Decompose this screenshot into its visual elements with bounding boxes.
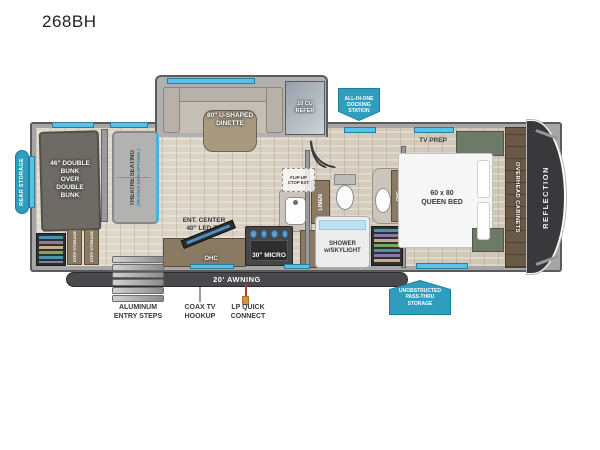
window <box>416 263 468 269</box>
faucet-icon <box>293 200 298 205</box>
vanity-sink <box>375 188 391 213</box>
theatre-seating: THEATRE SEATING (TRI-FOLD SOFA OPTIONAL) <box>112 131 159 224</box>
refrigerator: 10 CU REFER <box>285 81 325 135</box>
tv-prep-label: TV PREP <box>408 135 458 145</box>
front-cap: REFLECTION <box>527 121 564 273</box>
shower: SHOWER w/SKYLIGHT <box>315 216 370 268</box>
ent-ohc-label: OHC <box>192 254 230 264</box>
bunk-room-wall <box>101 129 108 222</box>
dinette-label: 80" U-SHAPED DINETTE <box>170 107 290 133</box>
refer-label: 10 CU REFER <box>296 101 315 114</box>
skylight-icon <box>319 220 366 230</box>
lp-label: LP QUICK CONNECT <box>219 303 277 323</box>
wardrobe-clothes-rod <box>36 233 66 266</box>
page-title: 268BH <box>42 12 96 32</box>
bunk-label: 46" DOUBLE BUNK OVER DOUBLE BUNK <box>38 145 102 215</box>
brand-label: REFLECTION <box>541 166 550 229</box>
coax-line-icon <box>199 287 201 302</box>
floorplan-page: 268BH 80" U-SHAPED DINETTE 10 CU REFER A… <box>0 0 600 450</box>
shower-label: SHOWER w/SKYLIGHT <box>318 231 367 265</box>
window <box>29 156 35 208</box>
toilet-bowl-icon <box>336 185 354 210</box>
flip-up-ctop: FLIP-UP CTOP EXT <box>282 168 315 192</box>
window <box>344 127 376 133</box>
window <box>414 127 454 133</box>
step-storage-1: STEP STORAGE <box>67 229 82 265</box>
overhead-cabinets-label: OVERHEAD CABINETS <box>514 162 520 233</box>
docking-station-badge: ALL-IN-ONE DOCKING STATION <box>338 88 380 121</box>
step-storage-2-label: STEP STORAGE <box>89 231 94 262</box>
micro-label: 30" MICRO <box>243 250 295 261</box>
toilet-icon <box>334 174 356 185</box>
rear-storage-label: REAR STORAGE <box>19 158 25 206</box>
window <box>52 122 94 128</box>
window <box>190 264 234 269</box>
theatre-seating-option-label: (TRI-FOLD SOFA OPTIONAL) <box>136 149 141 207</box>
step-storage-2: STEP STORAGE <box>84 229 99 265</box>
entry-steps-icon <box>112 256 164 302</box>
rear-storage-badge: REAR STORAGE <box>15 150 29 214</box>
flip-up-ctop-label: FLIP-UP CTOP EXT <box>283 169 314 191</box>
window <box>284 264 310 269</box>
window <box>167 78 255 84</box>
window <box>110 122 148 128</box>
awning-label: 20' AWNING <box>213 275 261 284</box>
step-storage-1-label: STEP STORAGE <box>72 231 77 262</box>
docking-station-label: ALL-IN-ONE DOCKING STATION <box>339 89 379 120</box>
dinette-back-cushion <box>163 87 283 102</box>
theatre-seating-label: THEATRE SEATING <box>130 150 136 206</box>
queen-bed-label: 60 x 80 QUEEN BED <box>402 188 482 210</box>
linen-label: LINEN <box>318 194 324 211</box>
